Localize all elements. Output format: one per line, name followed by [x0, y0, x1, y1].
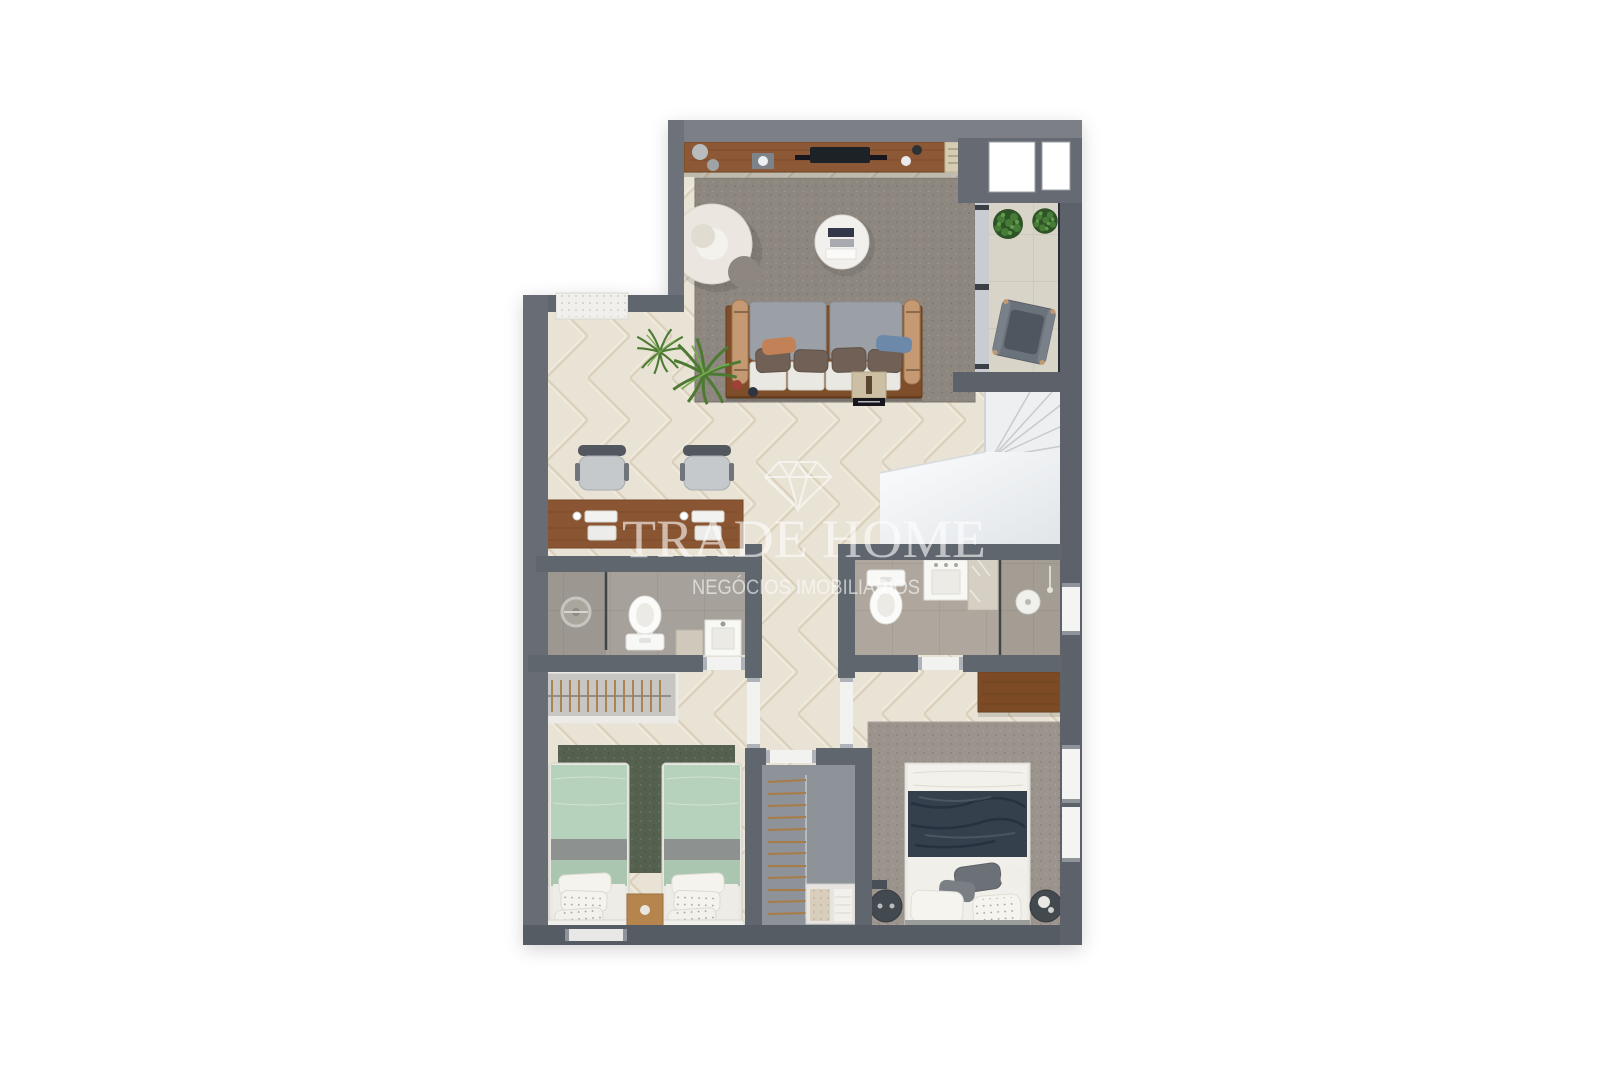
- wall-stairs-top: [953, 372, 1082, 392]
- keyboard: [585, 511, 617, 522]
- entry-doormat: [556, 293, 628, 319]
- mug: [573, 512, 581, 520]
- wall-master-top: [838, 655, 918, 672]
- sofa-brand-plate: [853, 398, 885, 406]
- wardrobe: [542, 672, 677, 722]
- single-bed: [547, 763, 631, 929]
- nightstand-round: [870, 890, 902, 922]
- sliding-glass-door: [975, 203, 989, 372]
- decor-sphere: [692, 144, 708, 160]
- wall-entry-top: [628, 295, 684, 312]
- wall-desk: [978, 672, 1062, 717]
- shower-drain: [562, 598, 590, 626]
- office-chair: [575, 445, 629, 490]
- wall-socket: [872, 880, 887, 889]
- window-twin-bottom: [565, 929, 627, 941]
- wall-living-left: [668, 120, 684, 312]
- plant-pot: [748, 387, 758, 397]
- walk-in-closet: [762, 765, 855, 925]
- double-bed: [905, 763, 1030, 929]
- window: [989, 142, 1070, 192]
- balcony-armchair: [992, 299, 1057, 366]
- wall-closet-right: [855, 748, 872, 925]
- decor-sphere: [707, 159, 719, 171]
- nightstand-round: [1030, 890, 1062, 922]
- blue-pillow: [875, 334, 912, 353]
- nightstand: [627, 894, 663, 926]
- single-bed: [660, 763, 744, 929]
- closet-shelf: [806, 884, 855, 924]
- side-tray: [852, 372, 886, 398]
- decor-vase: [912, 145, 922, 155]
- office-chair: [680, 445, 734, 490]
- tv-console: [684, 142, 967, 177]
- watermark-subtitle: NEGÓCIOS IMOBILIÁRIOS: [692, 576, 920, 599]
- flower-pot: [732, 380, 742, 390]
- wall-closet-top: [745, 748, 766, 765]
- potted-bush: [993, 209, 1023, 239]
- decor-ball: [901, 156, 911, 166]
- toilet: [626, 596, 664, 650]
- paper-tray: [588, 526, 616, 540]
- window-right-shower: [1062, 583, 1080, 635]
- watermark-title: TRADE HOME: [622, 509, 986, 569]
- wall-bath1-bottom: [528, 655, 703, 672]
- potted-bush: [1032, 208, 1058, 234]
- wall-master-top: [963, 655, 1062, 672]
- bathroom-2: [855, 558, 1060, 655]
- wall-left: [523, 295, 548, 945]
- wall-corridor-left: [745, 748, 762, 925]
- floor-plan-render: TRADE HOME NEGÓCIOS IMOBILIÁRIOS: [0, 0, 1600, 1066]
